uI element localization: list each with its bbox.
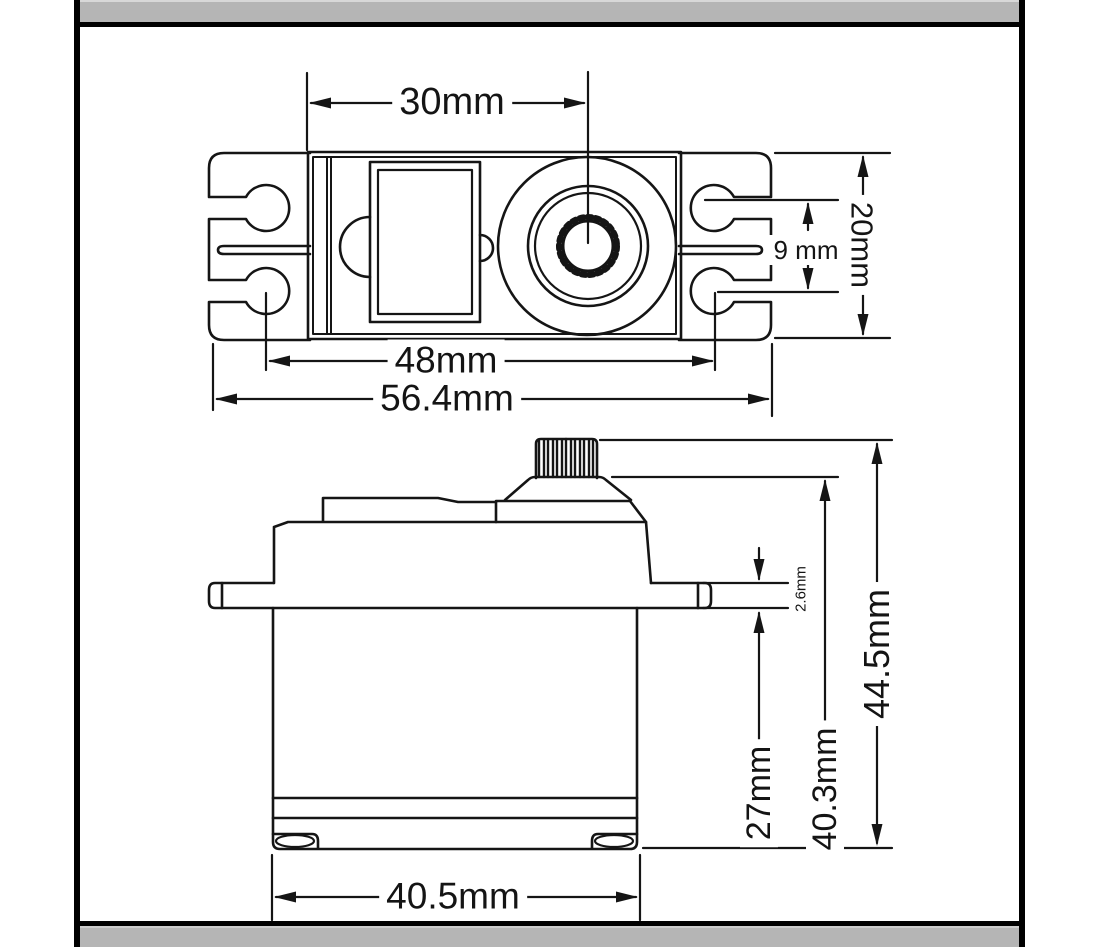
- label-plate-outer: [370, 162, 480, 322]
- dim-label-44.5mm: 44.5mm: [857, 582, 897, 726]
- case-top-right-block: [496, 501, 646, 522]
- lower-body-lines: [273, 798, 637, 818]
- dim-label-40.5mm: 40.5mm: [379, 876, 527, 917]
- top-view-left-slit: [218, 246, 310, 254]
- shaft-boss: [505, 477, 631, 500]
- side-view: [209, 439, 711, 849]
- dim-label-30mm: 30mm: [392, 81, 512, 123]
- left-foot-hole: [276, 835, 314, 847]
- label-plate-inner: [378, 170, 472, 314]
- side-view-arrowheads: [274, 442, 883, 903]
- case-top-left-block: [323, 498, 496, 521]
- label-plate-right-bulge: [480, 235, 493, 261]
- dim-label-48mm: 48mm: [388, 340, 505, 381]
- dim-label-20mm: 20mm: [845, 195, 880, 295]
- side-flange-end-caps: [222, 583, 698, 608]
- upper-case: [274, 522, 651, 583]
- spline-shaft-teeth: [539, 439, 593, 477]
- dim-label-2.6mm: 2.6mm: [793, 562, 810, 616]
- dim-label-56.4mm: 56.4mm: [373, 378, 521, 419]
- side-flange: [209, 583, 711, 608]
- lower-body: [273, 608, 637, 849]
- dim-label-40.3mm: 40.3mm: [806, 721, 844, 858]
- drawing-canvas: 30mm 9 mm 20mm 48mm 56.4mm 2.6mm 27mm 40…: [0, 0, 1099, 947]
- top-view-body-outer: [308, 152, 681, 339]
- dim-label-27mm: 27mm: [740, 739, 778, 847]
- top-view-right-slit: [679, 246, 762, 254]
- top-view-body-seam: [327, 157, 331, 334]
- right-foot-hole: [595, 835, 633, 847]
- label-plate-left-bulge: [340, 217, 370, 277]
- servo-technical-drawing: [0, 0, 1099, 947]
- top-view-body-inner: [313, 157, 676, 334]
- dim-label-9mm: 9 mm: [767, 235, 846, 265]
- dim-26-extension: [703, 583, 788, 608]
